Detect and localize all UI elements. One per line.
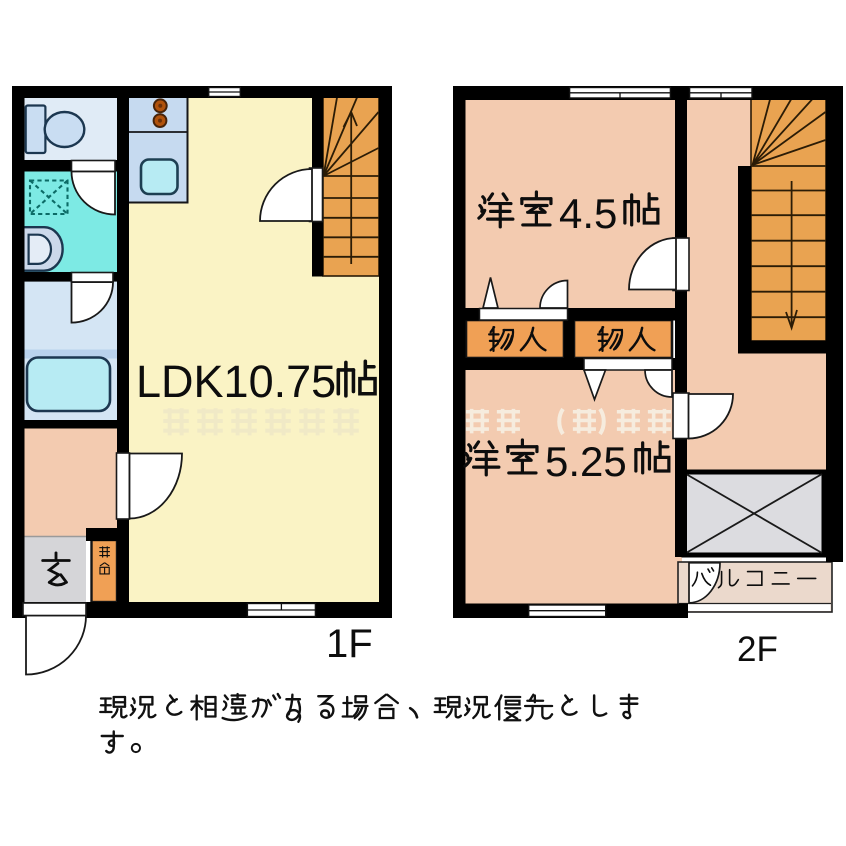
svg-text:LDK10.75: LDK10.75 — [136, 356, 336, 407]
svg-text:4.5: 4.5 — [559, 190, 617, 237]
svg-text:5.25: 5.25 — [545, 438, 627, 485]
svg-text:2F: 2F — [737, 630, 778, 669]
svg-text:1F: 1F — [326, 622, 373, 666]
